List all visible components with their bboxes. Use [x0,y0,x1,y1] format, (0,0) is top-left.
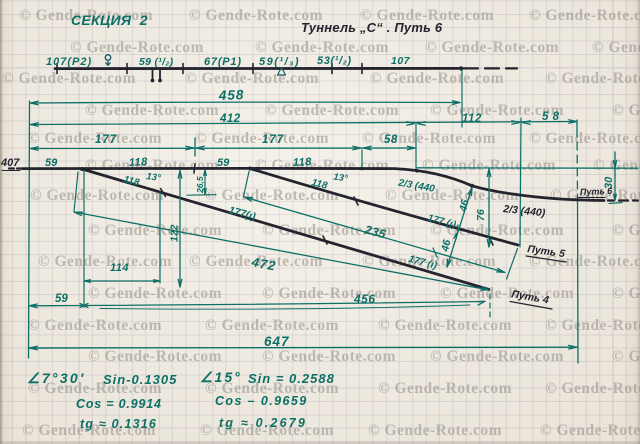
svg-text:53(¹/₂): 53(¹/₂) [317,55,352,67]
svg-text:∠15°: ∠15° [200,369,242,385]
svg-text:114: 114 [110,262,129,274]
svg-text:2/3 (440): 2/3 (440) [502,203,547,219]
svg-text:177: 177 [95,134,117,146]
svg-text:118: 118 [129,156,149,169]
svg-text:458: 458 [218,87,245,103]
svg-text:5 8: 5 8 [542,111,560,123]
svg-text:Туннель „С“ . Путь 6: Туннель „С“ . Путь 6 [301,20,443,35]
svg-text:13°: 13° [146,171,162,184]
svg-text:Путь 4: Путь 4 [510,288,549,306]
svg-text:Sin‑0.1305: Sin‑0.1305 [103,372,177,387]
svg-text:13°: 13° [333,172,349,185]
svg-text:647: 647 [264,334,290,349]
svg-text:59 (¹/₂): 59 (¹/₂) [139,56,174,68]
svg-text:46: 46 [439,239,453,254]
svg-text:2/3 (440: 2/3 (440 [396,177,435,194]
svg-text:177(ı): 177(ı) [227,204,257,223]
svg-text:118: 118 [293,156,313,169]
svg-text:456: 456 [353,292,376,306]
svg-text:59: 59 [45,157,58,169]
svg-text:118: 118 [122,174,141,189]
svg-text:472: 472 [249,254,277,274]
svg-text:177: 177 [262,134,284,146]
svg-text:∠7°30′: ∠7°30′ [27,370,86,386]
svg-text:tg ≈ 0.2679: tg ≈ 0.2679 [219,416,307,430]
svg-text:Sin = 0.2588: Sin = 0.2588 [248,371,335,386]
svg-text:Cos = 0.9914: Cos = 0.9914 [76,397,162,411]
svg-text:118: 118 [310,177,329,192]
svg-text:122: 122 [169,224,181,242]
svg-text:26,5: 26,5 [195,176,205,194]
svg-text:67(Р1): 67(Р1) [204,56,242,68]
svg-text:58: 58 [384,134,398,146]
svg-text:412: 412 [219,113,241,125]
svg-text:407: 407 [0,157,20,169]
svg-text:235: 235 [362,222,387,241]
svg-text:59: 59 [55,293,68,305]
svg-text:76: 76 [475,209,487,221]
svg-text:Путь 6: Путь 6 [580,186,614,197]
svg-text:107: 107 [391,55,411,67]
svg-text:Cos – 0.9659: Cos – 0.9659 [215,394,308,408]
svg-text:Путь 5: Путь 5 [527,243,566,260]
svg-text:СЕКЦИЯ 2: СЕКЦИЯ 2 [71,12,148,28]
svg-text:177 (ı): 177 (ı) [426,213,457,231]
svg-text:112: 112 [462,113,482,125]
svg-text:tg ≈ 0.1316: tg ≈ 0.1316 [80,417,157,431]
svg-text:46: 46 [457,199,471,214]
svg-text:59: 59 [217,157,230,169]
svg-text:107(Р2): 107(Р2) [46,56,92,68]
svg-text:59(¹/₃): 59(¹/₃) [259,56,300,68]
